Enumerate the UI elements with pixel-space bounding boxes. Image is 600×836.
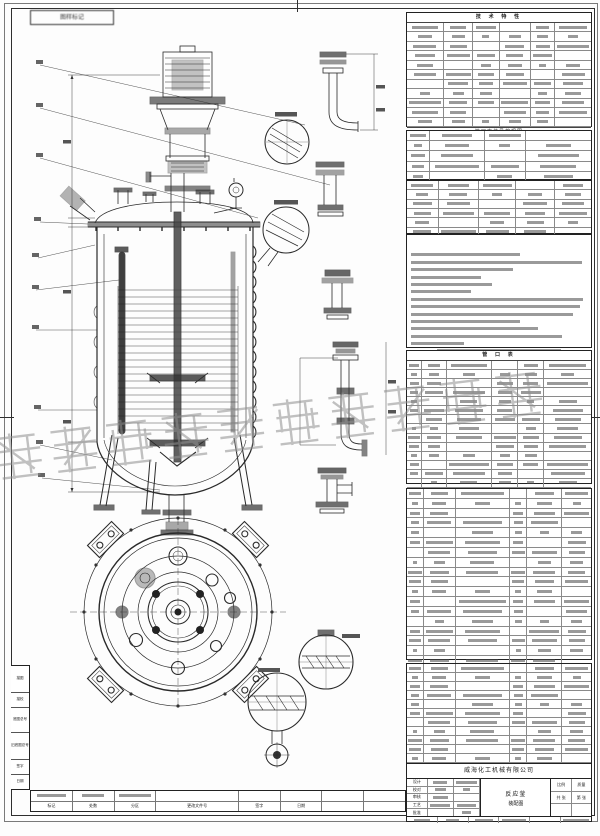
- table-cell: [473, 80, 499, 88]
- cell-text-smudge: [531, 521, 558, 524]
- revision-cell: [239, 791, 281, 801]
- cell-text-smudge: [476, 26, 496, 29]
- cell-text-smudge: [457, 418, 482, 421]
- revision-cell: [322, 791, 364, 801]
- table-cell: [527, 682, 562, 690]
- table-cell: [544, 388, 591, 396]
- signature-cell: [454, 794, 480, 801]
- note-line: [411, 249, 587, 253]
- cell-text-smudge: [453, 391, 485, 394]
- cell-text-smudge: [430, 512, 448, 515]
- cell-text-smudge: [566, 64, 580, 67]
- table-cell: [447, 406, 493, 414]
- table-cell: [473, 108, 499, 116]
- table-cell: [510, 617, 527, 626]
- table-cell: [562, 691, 591, 699]
- signature-role-label: 设计: [407, 779, 428, 786]
- revision-table: 标记处数分区更改文件号签字日期: [30, 790, 406, 812]
- cell-text-smudge: [551, 472, 585, 475]
- revision-cell: 日期: [281, 802, 323, 812]
- cell-text-smudge: [433, 796, 448, 799]
- cell-text-smudge: [435, 788, 446, 791]
- cell-text-smudge: [463, 788, 470, 791]
- note-line: [411, 241, 587, 245]
- cell-text-smudge: [513, 541, 523, 544]
- cell-text-smudge: [489, 134, 521, 137]
- cell-text-smudge: [515, 757, 521, 760]
- table-cell: [407, 397, 422, 405]
- table-cell: [492, 361, 518, 369]
- revision-row: 标记处数分区更改文件号签字日期: [31, 802, 405, 812]
- table-cell: [473, 61, 499, 69]
- table-cell: [562, 509, 591, 518]
- cell-text-smudge: [441, 154, 474, 157]
- cell-text-smudge: [566, 610, 587, 613]
- table-cell: [562, 528, 591, 537]
- cell-text-smudge: [573, 676, 581, 679]
- cell-text-smudge: [411, 373, 416, 376]
- table-cell: [562, 568, 591, 577]
- revision-cell: [322, 802, 364, 812]
- cell-text-smudge: [466, 571, 498, 574]
- cell-text-smudge: [534, 512, 554, 515]
- cell-text-smudge: [513, 685, 523, 688]
- table-row: [407, 461, 591, 470]
- table-row: [407, 518, 591, 528]
- table-cell: [439, 200, 480, 208]
- table-cell: [562, 736, 591, 744]
- table-row: [407, 587, 591, 597]
- table-cell: [527, 664, 562, 672]
- table-cell: [510, 548, 527, 557]
- table-cell: [407, 736, 424, 744]
- table-cell: [424, 597, 455, 606]
- cell-text-smudge: [497, 382, 513, 385]
- table-cell: [424, 607, 455, 616]
- cell-text-smudge: [426, 630, 453, 633]
- cell-text-smudge: [465, 630, 499, 633]
- table-cell: [526, 162, 591, 171]
- table-cell: [510, 489, 527, 498]
- cell-text-smudge: [411, 531, 418, 534]
- cell-text-smudge: [499, 481, 510, 484]
- cell-text-smudge: [412, 676, 418, 679]
- table-cell: [407, 190, 439, 198]
- cell-text-smudge: [410, 630, 420, 633]
- cell-text-smudge: [452, 120, 465, 123]
- cell-text-smudge: [537, 120, 547, 123]
- table-cell: [407, 587, 424, 596]
- table-row: [407, 673, 591, 682]
- table-cell: [444, 108, 474, 116]
- signature-role-label: 校对: [407, 787, 428, 794]
- table-cell: [555, 108, 591, 116]
- table-cell: [526, 131, 591, 140]
- cell-text-smudge: [432, 502, 446, 505]
- note-text-smudge: [411, 290, 471, 293]
- table-cell: [473, 70, 499, 78]
- table-cell: [562, 745, 591, 753]
- cell-text-smudge: [478, 101, 493, 104]
- table-cell: [492, 397, 518, 405]
- table-cell: [407, 162, 430, 171]
- cell-text-smudge: [459, 600, 506, 603]
- table-row: [407, 627, 591, 637]
- table-cell: [510, 568, 527, 577]
- cell-text-smudge: [537, 502, 552, 505]
- table-cell: [424, 617, 455, 626]
- table-cell: [456, 727, 511, 735]
- table-cell: [422, 370, 446, 378]
- cell-text-smudge: [568, 630, 586, 633]
- note-text-smudge: [411, 298, 583, 301]
- table-cell: [407, 70, 444, 78]
- cell-text-smudge: [410, 472, 418, 475]
- table-cell: [473, 118, 499, 126]
- cell-text-smudge: [424, 409, 444, 412]
- cell-text-smudge: [511, 739, 525, 742]
- detail-circle-a: [265, 112, 309, 164]
- cell-text-smudge: [431, 580, 448, 583]
- table-cell: [510, 518, 527, 527]
- cell-text-smudge: [547, 382, 588, 385]
- table-title: 管 口 表: [407, 351, 591, 361]
- table-cell: [422, 434, 446, 442]
- table-cell: [527, 736, 562, 744]
- table-cell: [562, 627, 591, 636]
- table-cell: [531, 51, 555, 59]
- note-text-smudge: [411, 276, 481, 279]
- cell-text-smudge: [465, 541, 499, 544]
- table-cell: [510, 577, 527, 586]
- table-cell: [407, 664, 424, 672]
- table-cell: [555, 99, 591, 107]
- table-cell: [424, 727, 455, 735]
- table-cell: [447, 379, 493, 387]
- table-cell: [492, 388, 518, 396]
- table-cell: [422, 461, 446, 469]
- table-cell: [407, 200, 439, 208]
- cell-text-smudge: [499, 144, 510, 147]
- cell-text-smudge: [563, 82, 583, 85]
- table-cell: [407, 636, 424, 645]
- cell-text-smudge: [512, 551, 525, 554]
- title-block-grid: 设计校对审核工艺批准 反应釜 装配图 比例质量共 张第 张: [407, 779, 591, 817]
- cell-text-smudge: [415, 221, 429, 224]
- table-cell: [407, 718, 424, 726]
- table-cell: [527, 587, 562, 596]
- table-cell: [407, 518, 424, 527]
- table-cell: [422, 452, 446, 460]
- detail-circle-d: [248, 668, 306, 768]
- cell-text-smudge: [570, 730, 583, 733]
- left-margin-block: 描图描校底图总号旧底图总号签字日期: [11, 665, 30, 790]
- cell-text-smudge: [559, 400, 577, 403]
- table-cell: [444, 99, 474, 107]
- table-cell: [527, 499, 562, 508]
- bottom-outlet-valve: [161, 495, 193, 535]
- table-technical-characteristics: 技 术 特 性管口方位见俯视图: [406, 12, 592, 127]
- table-cell: [527, 727, 562, 735]
- cell-text-smudge: [511, 571, 525, 574]
- cell-text-smudge: [431, 492, 448, 495]
- table-cell: [424, 538, 455, 547]
- table-row: [407, 61, 591, 70]
- table-cell: [447, 434, 493, 442]
- cell-text-smudge: [409, 445, 419, 448]
- table-cell: [510, 718, 527, 726]
- cell-text-smudge: [460, 400, 477, 403]
- cell-text-smudge: [416, 193, 428, 196]
- cell-text-smudge: [430, 427, 439, 430]
- cell-text-smudge: [515, 502, 521, 505]
- table-cell: [430, 151, 485, 160]
- cell-text-smudge: [568, 35, 578, 38]
- table-row: [407, 108, 591, 117]
- note-text-smudge: [411, 327, 538, 330]
- table-materials: [406, 180, 592, 234]
- cell-text-smudge: [434, 649, 446, 652]
- cell-text-smudge: [539, 64, 546, 67]
- drawing-type: 装配图: [508, 800, 523, 807]
- table-cell: [456, 627, 511, 636]
- table-cell: [424, 673, 455, 681]
- dimension-lines: [63, 75, 160, 492]
- note-text-smudge: [411, 335, 562, 338]
- table-cell: [407, 691, 424, 699]
- cell-text-smudge: [546, 144, 571, 147]
- table-cell: [456, 568, 511, 577]
- table-cell: [422, 424, 446, 432]
- cell-text-smudge: [498, 472, 512, 475]
- cell-text-smudge: [412, 26, 438, 29]
- cell-text-smudge: [538, 92, 547, 95]
- cell-text-smudge: [535, 101, 550, 104]
- cell-text-smudge: [540, 620, 550, 623]
- revision-cell: 签字: [239, 802, 281, 812]
- cell-text-smudge: [411, 521, 420, 524]
- cell-text-smudge: [512, 748, 524, 751]
- table-cell: [407, 597, 424, 606]
- table-cell: [407, 379, 422, 387]
- table-cell: [422, 406, 446, 414]
- cell-text-smudge: [509, 120, 521, 123]
- table-cell: [444, 89, 474, 97]
- table-cell: [500, 61, 531, 69]
- cell-text-smudge: [431, 667, 448, 670]
- cell-text-smudge: [497, 463, 513, 466]
- table-cell: [555, 51, 591, 59]
- cell-text-smudge: [484, 212, 510, 215]
- cell-text-smudge: [412, 111, 438, 114]
- table-cell: [447, 397, 493, 405]
- table-cell: [531, 23, 555, 31]
- cell-text-smudge: [526, 427, 536, 430]
- table-row: [407, 209, 591, 218]
- table-cell: [527, 617, 562, 626]
- note-line-centered: [411, 337, 587, 341]
- table-cell: [492, 479, 518, 487]
- cell-text-smudge: [409, 364, 419, 367]
- cell-text-smudge: [512, 580, 524, 583]
- table-cell: [492, 406, 518, 414]
- signature-cell: [454, 802, 480, 809]
- cell-text-smudge: [523, 436, 539, 439]
- note-line: [411, 293, 587, 297]
- cell-text-smudge: [515, 590, 521, 593]
- table-cell: [444, 42, 474, 50]
- detail-dip-pipe: [320, 52, 385, 132]
- cell-text-smudge: [413, 730, 418, 733]
- cell-text-smudge: [494, 436, 516, 439]
- table-cell: [407, 528, 424, 537]
- cell-text-smudge: [414, 73, 435, 76]
- cell-text-smudge: [450, 45, 467, 48]
- table-cell: [456, 700, 511, 708]
- cell-text-smudge: [559, 111, 588, 114]
- table-cell: [456, 736, 511, 744]
- info-row: 比例质量: [551, 779, 591, 792]
- table-cell: [518, 370, 544, 378]
- table-cell: [518, 406, 544, 414]
- table-cell: [527, 709, 562, 717]
- note-text-smudge: [411, 320, 520, 323]
- cell-text-smudge: [460, 481, 477, 484]
- detail-nozzle-3: [316, 468, 352, 513]
- cell-text-smudge: [538, 649, 551, 652]
- table-cell: [456, 548, 511, 557]
- table-row: [407, 682, 591, 691]
- note-line: [411, 278, 587, 282]
- table-cell: [492, 434, 518, 442]
- cell-text-smudge: [429, 373, 439, 376]
- table-cell: [422, 379, 446, 387]
- cell-text-smudge: [531, 694, 558, 697]
- cell-text-smudge: [457, 804, 475, 807]
- cell-text-smudge: [410, 409, 419, 412]
- table-cell: [473, 23, 499, 31]
- cell-text-smudge: [528, 193, 542, 196]
- cell-text-smudge: [559, 26, 588, 29]
- note-text-smudge: [411, 342, 464, 345]
- cell-text-smudge: [540, 165, 576, 168]
- table-cell: [473, 32, 499, 40]
- cell-text-smudge: [511, 659, 525, 662]
- table-cell: [518, 361, 544, 369]
- table-cell: [430, 141, 485, 150]
- table-row: [407, 538, 591, 548]
- cell-text-smudge: [536, 26, 549, 29]
- table-row: [407, 397, 591, 406]
- cell-text-smudge: [409, 580, 421, 583]
- table-cell: [407, 118, 444, 126]
- cell-text-smudge: [522, 418, 540, 421]
- cell-text-smudge: [569, 721, 585, 724]
- cell-text-smudge: [477, 54, 495, 57]
- table-cell: [407, 700, 424, 708]
- table-cell: [527, 489, 562, 498]
- cell-text-smudge: [410, 541, 420, 544]
- table-row: [407, 664, 591, 673]
- cell-text-smudge: [527, 481, 534, 484]
- table-cell: [500, 23, 531, 31]
- signature-grid: 设计校对审核工艺批准: [407, 779, 481, 816]
- cell-text-smudge: [562, 101, 583, 104]
- table-cell: [510, 682, 527, 690]
- cell-text-smudge: [568, 712, 586, 715]
- cell-text-smudge: [426, 541, 453, 544]
- table-row: [407, 548, 591, 558]
- cell-text-smudge: [411, 703, 418, 706]
- cell-text-smudge: [429, 454, 439, 457]
- cell-text-smudge: [410, 512, 420, 515]
- note-text-smudge: [411, 283, 492, 286]
- cell-text-smudge: [527, 221, 544, 224]
- drawing-number-cell: [499, 817, 530, 823]
- detail-circle-c: [299, 630, 360, 689]
- table-cell: [407, 141, 430, 150]
- revision-cell: [281, 791, 323, 801]
- cell-text-smudge: [463, 373, 476, 376]
- table-cell: [527, 577, 562, 586]
- cell-text-smudge: [408, 571, 422, 574]
- table-cell: [531, 99, 555, 107]
- table-cell: [407, 577, 424, 586]
- cell-text-smudge: [468, 721, 498, 724]
- table-cell: [492, 415, 518, 423]
- revision-cell: [156, 791, 239, 801]
- revision-cell: 标记: [31, 802, 73, 812]
- table-cell: [407, 434, 422, 442]
- table-cell: [562, 558, 591, 567]
- table-row: [407, 577, 591, 587]
- baffle: [231, 252, 235, 432]
- detail-circle-b: [258, 200, 309, 266]
- table-cell: [424, 587, 455, 596]
- table-cell: [510, 700, 527, 708]
- cell-text-smudge: [495, 418, 515, 421]
- cell-text-smudge: [427, 436, 442, 439]
- table-cell: [456, 509, 511, 518]
- cell-text-smudge: [456, 436, 483, 439]
- cell-text-smudge: [414, 212, 431, 215]
- cell-text-smudge: [411, 694, 420, 697]
- cell-text-smudge: [413, 561, 418, 564]
- table-cell: [422, 397, 446, 405]
- table-cell: [527, 691, 562, 699]
- note-line: [411, 256, 587, 260]
- cell-text-smudge: [547, 463, 588, 466]
- cell-text-smudge: [563, 184, 583, 187]
- table-cell: [424, 627, 455, 636]
- signature-row: 校对: [407, 787, 480, 795]
- table-cell: [562, 617, 591, 626]
- cell-text-smudge: [432, 676, 446, 679]
- cell-text-smudge: [443, 212, 475, 215]
- table-cell: [447, 470, 493, 478]
- cell-text-smudge: [513, 600, 523, 603]
- scale-weight-grid: 比例质量共 张第 张: [551, 779, 591, 816]
- table-row: [407, 131, 591, 141]
- table-cell: [447, 415, 493, 423]
- table-cell: [479, 218, 516, 226]
- table-row: [407, 727, 591, 736]
- cell-text-smudge: [470, 561, 494, 564]
- cell-text-smudge: [475, 757, 490, 760]
- drawing-number-cell: [469, 817, 500, 823]
- cell-text-smudge: [506, 54, 523, 57]
- cell-text-smudge: [536, 45, 550, 48]
